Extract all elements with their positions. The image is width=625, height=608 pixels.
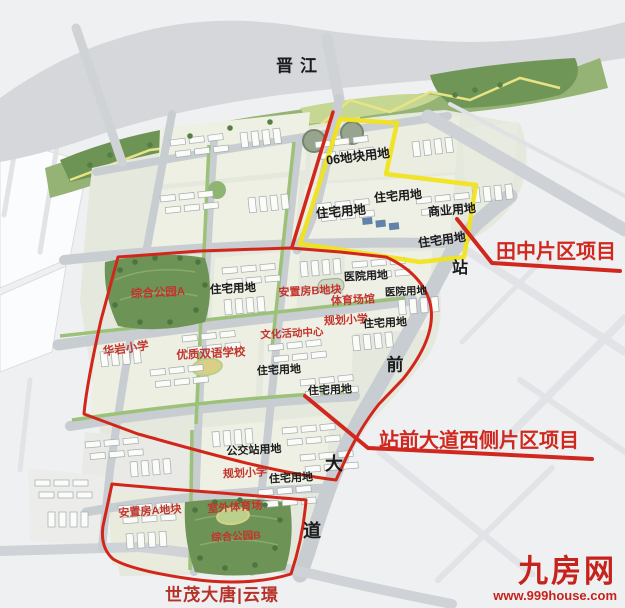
road-char-da: 大 [325, 455, 343, 473]
residential-label-6: 住宅用地 [257, 364, 302, 377]
residential-label-8: 住宅用地 [269, 472, 314, 485]
residential-label-4: 住宅用地 [210, 283, 257, 297]
project-name-label: 世茂大唐|云璟 [165, 587, 279, 604]
watermark: 九房网 www.999house.com [493, 557, 617, 602]
planned-school-label-1: 规划小学 [324, 314, 369, 327]
watermark-url: www.999house.com [493, 589, 617, 602]
river-label: 晋江 [276, 58, 324, 75]
hospital-label-2: 医院用地 [385, 286, 427, 299]
callout-label-tianzhong: 田中片区项目 [496, 242, 616, 262]
road-char-qian: 前 [387, 357, 404, 374]
watermark-logo: 九房网 [493, 556, 617, 588]
park-b-label: 综合公园B [211, 530, 261, 543]
master-plan-map: 晋江 06地块用地 住宅用地 住宅用地 商业用地 住宅用地 站 前 大 道 田中… [0, 0, 625, 608]
hospital-label-1: 医院用地 [344, 270, 389, 283]
callout-label-zhanqian-west: 站前大道西侧片区项目 [379, 431, 579, 451]
sports-hall-label: 体育场馆 [331, 294, 376, 307]
residential-label-5: 住宅用地 [363, 317, 408, 330]
residential-label-7: 住宅用地 [308, 384, 353, 397]
map-artwork [0, 0, 625, 608]
planned-school-label-2: 规划小学 [223, 467, 268, 480]
road-char-zhan: 站 [452, 261, 468, 277]
road-char-dao: 道 [303, 522, 321, 540]
